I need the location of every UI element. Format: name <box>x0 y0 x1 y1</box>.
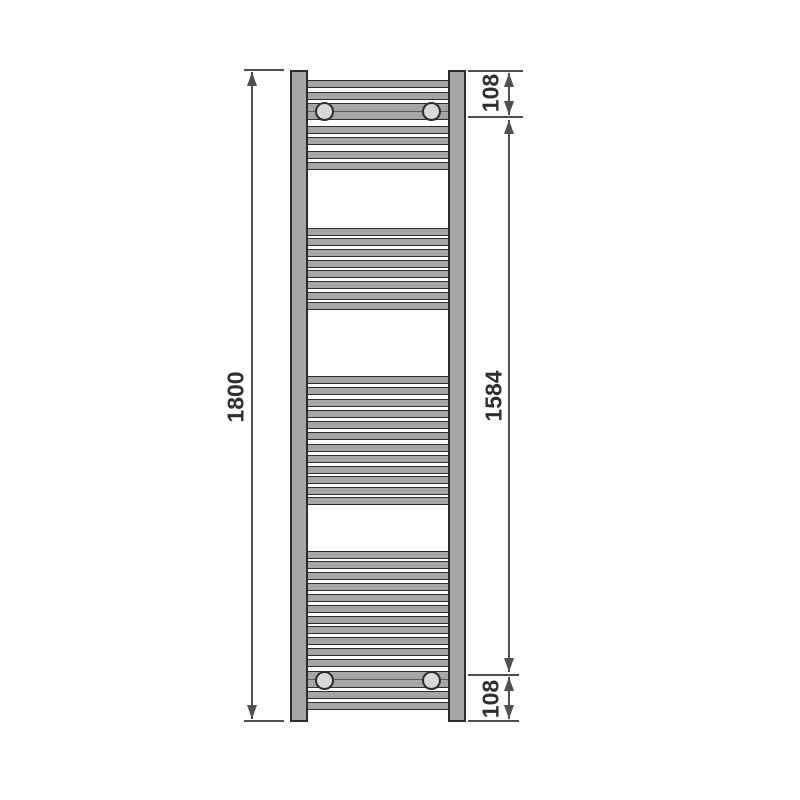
rung <box>306 616 450 624</box>
rung <box>306 399 450 407</box>
radiator-dimension-diagram: 1800 108 1584 108 <box>0 0 800 800</box>
rung <box>306 260 450 268</box>
dimension-line <box>508 120 510 672</box>
right-vertical-tube <box>448 70 466 722</box>
rung <box>306 497 450 505</box>
arrowhead-up-icon <box>247 72 257 86</box>
arrowhead-down-icon <box>504 101 514 115</box>
dimension-line <box>251 72 253 719</box>
rung <box>306 137 450 145</box>
extension-line <box>468 674 519 676</box>
rung <box>306 292 450 300</box>
rung <box>306 605 450 613</box>
rung <box>306 249 450 257</box>
rung <box>306 444 450 452</box>
rung <box>306 421 450 429</box>
arrowhead-up-icon <box>504 677 514 691</box>
extension-line <box>244 69 284 71</box>
rung <box>306 455 450 463</box>
rung <box>306 551 450 559</box>
extension-line <box>468 116 523 118</box>
arrowhead-down-icon <box>504 705 514 719</box>
rung <box>306 162 450 170</box>
left-vertical-tube <box>290 70 308 722</box>
rung <box>306 466 450 474</box>
wall-bracket <box>315 102 334 121</box>
rung <box>306 659 450 667</box>
dimension-label-bottom-bracket-offset: 108 <box>480 680 503 718</box>
rung <box>306 594 450 602</box>
rung <box>306 387 450 395</box>
extension-line <box>244 720 284 722</box>
rung <box>306 126 450 134</box>
rung <box>306 228 450 236</box>
arrowhead-down-icon <box>247 705 257 719</box>
rung <box>306 238 450 246</box>
wall-bracket <box>422 671 441 690</box>
rung <box>306 302 450 310</box>
wall-bracket <box>422 102 441 121</box>
rung <box>306 270 450 278</box>
rung <box>306 637 450 645</box>
rung <box>306 151 450 159</box>
rung <box>306 80 450 88</box>
rung <box>306 281 450 289</box>
arrowhead-up-icon <box>504 120 514 134</box>
rung <box>306 92 450 100</box>
rung <box>306 561 450 569</box>
rung <box>306 583 450 591</box>
dimension-label-overall-height: 1800 <box>225 371 248 422</box>
rung <box>306 702 450 710</box>
dimension-label-top-bracket-offset: 108 <box>480 74 503 112</box>
rung <box>306 476 450 484</box>
rung <box>306 410 450 418</box>
rung <box>306 626 450 634</box>
extension-line <box>468 70 523 72</box>
arrowhead-down-icon <box>504 658 514 672</box>
rung <box>306 487 450 495</box>
dimension-label-bracket-centres: 1584 <box>483 370 506 421</box>
rung <box>306 376 450 384</box>
arrowhead-up-icon <box>504 73 514 87</box>
extension-line <box>468 720 519 722</box>
rung <box>306 432 450 440</box>
rung <box>306 572 450 580</box>
rung <box>306 648 450 656</box>
wall-bracket <box>315 671 334 690</box>
rung <box>306 691 450 699</box>
